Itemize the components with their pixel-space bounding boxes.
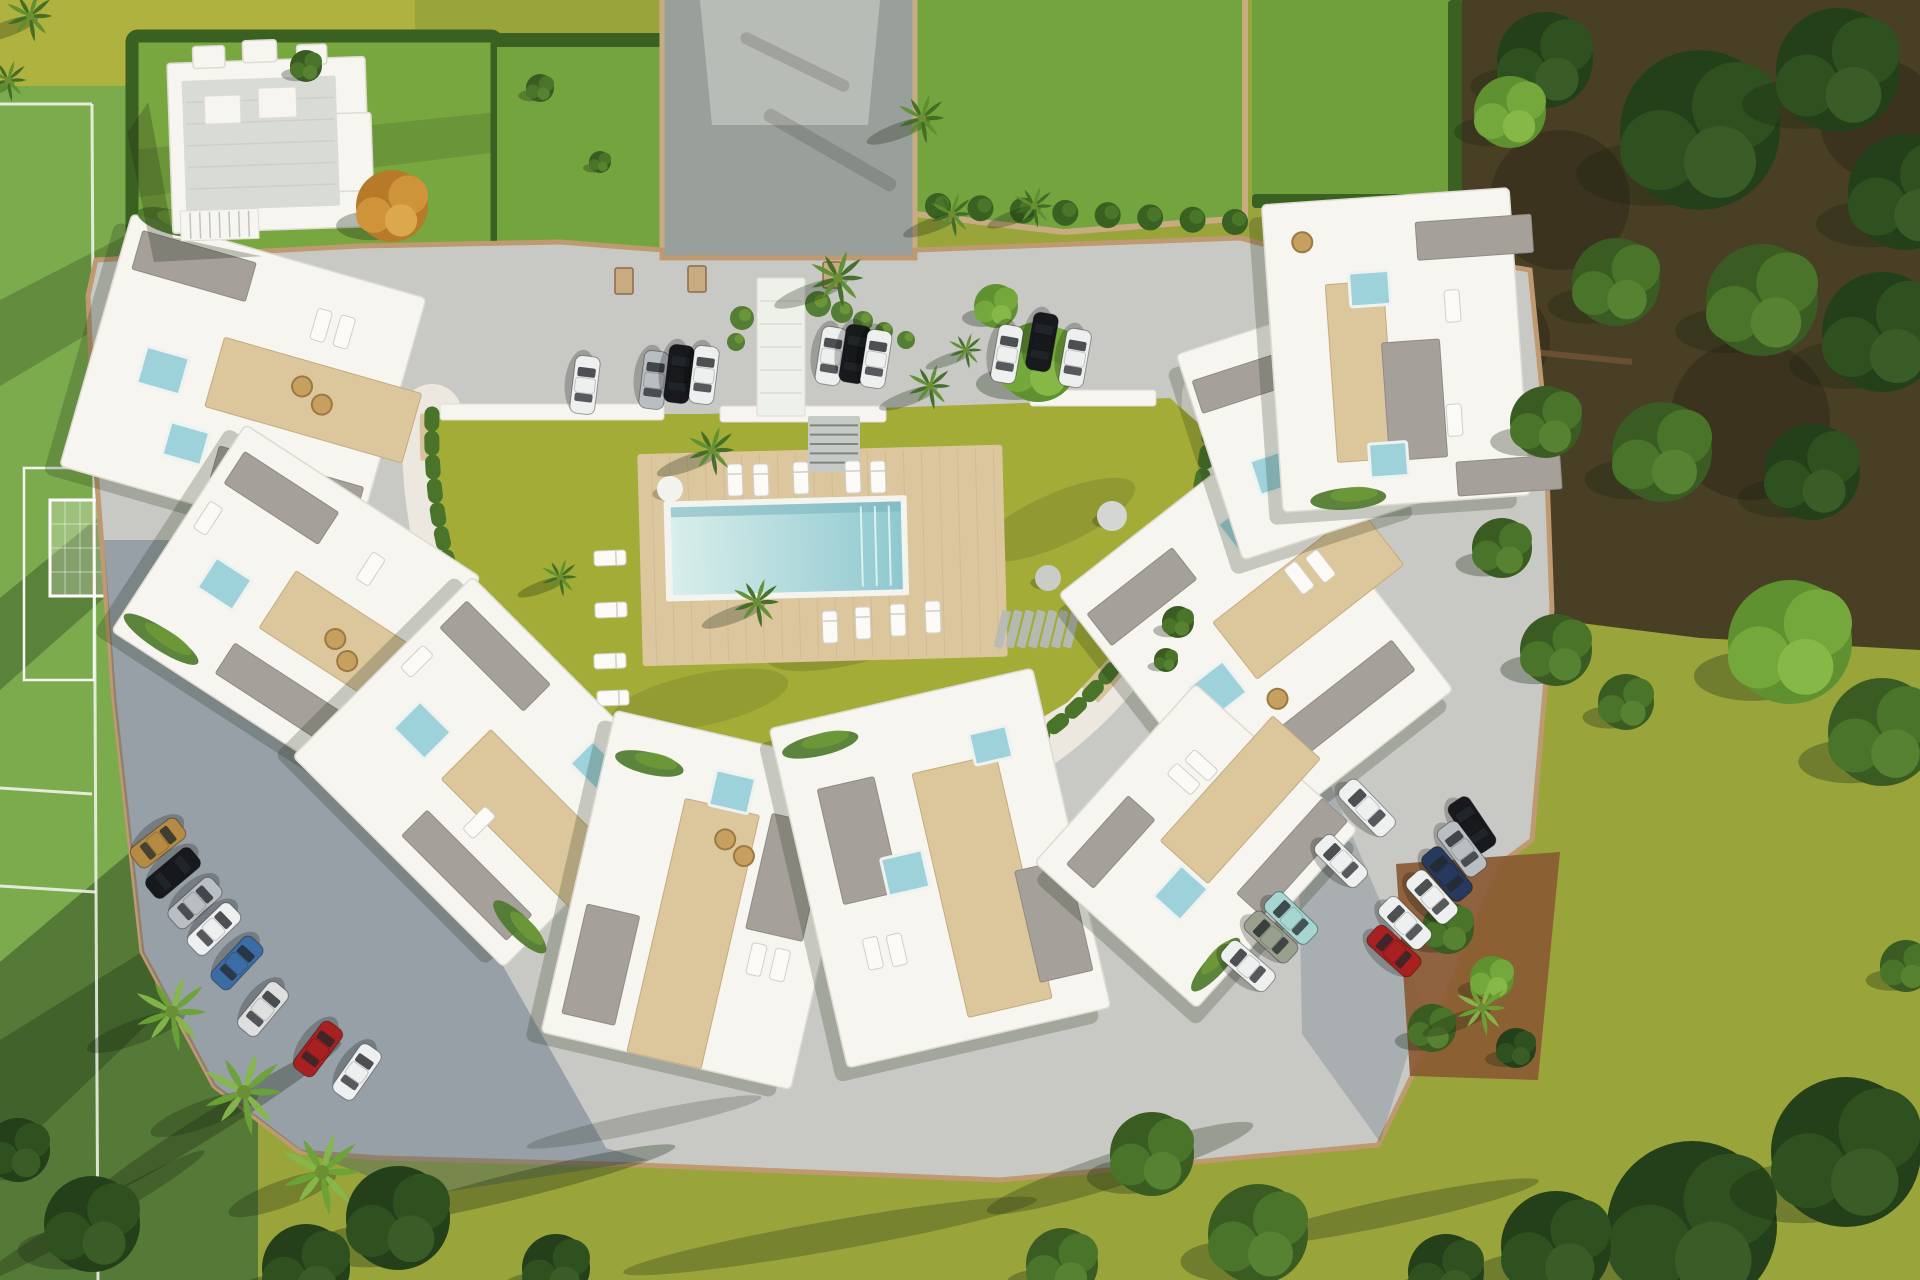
sun-lounger bbox=[925, 601, 941, 634]
sun-lounger bbox=[594, 653, 627, 669]
sun-lounger bbox=[890, 604, 906, 637]
entry-driveway bbox=[662, 0, 915, 258]
sun-lounger bbox=[595, 602, 628, 618]
apartment-block bbox=[1248, 185, 1564, 525]
sun-lounger bbox=[855, 607, 871, 640]
gate-post bbox=[688, 266, 706, 292]
sun-lounger bbox=[870, 461, 886, 494]
sun-lounger bbox=[597, 690, 630, 706]
sun-lounger bbox=[727, 464, 743, 497]
sun-lounger bbox=[753, 464, 769, 497]
swimming-pool bbox=[664, 495, 910, 601]
sun-lounger bbox=[594, 550, 627, 566]
aerial-3d-site-render bbox=[0, 0, 1920, 1280]
sun-lounger bbox=[845, 461, 861, 494]
gate-post bbox=[615, 268, 633, 294]
aerial-site-viewport bbox=[0, 0, 1920, 1280]
sun-lounger bbox=[822, 611, 838, 644]
sun-lounger bbox=[793, 462, 809, 495]
